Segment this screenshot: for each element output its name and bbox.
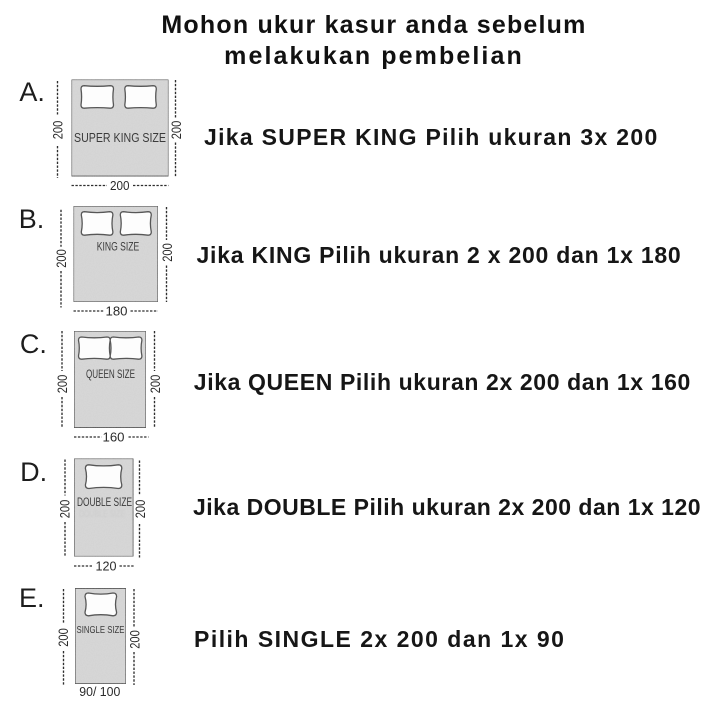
svg-text:200: 200 xyxy=(159,243,175,262)
svg-text:200: 200 xyxy=(53,249,69,268)
svg-text:200: 200 xyxy=(132,500,148,519)
svg-text:SINGLE SIZE: SINGLE SIZE xyxy=(77,624,125,636)
svg-text:160: 160 xyxy=(103,430,125,445)
svg-text:200: 200 xyxy=(55,628,71,647)
svg-text:200: 200 xyxy=(50,121,66,140)
svg-text:DOUBLE SIZE: DOUBLE SIZE xyxy=(79,508,125,520)
svg-text:SUPER KING SIZE: SUPER KING SIZE xyxy=(74,130,166,145)
svg-text:KING SIZE: KING SIZE xyxy=(97,242,140,254)
svg-text:200: 200 xyxy=(127,630,143,649)
svg-text:QUEEN SIZE: QUEEN SIZE xyxy=(86,369,135,381)
svg-text:200: 200 xyxy=(168,121,184,140)
svg-text:200: 200 xyxy=(57,500,73,519)
svg-text:200: 200 xyxy=(110,178,130,193)
svg-text:180: 180 xyxy=(106,304,128,319)
svg-text:120: 120 xyxy=(96,558,117,573)
svg-text:90/ 100: 90/ 100 xyxy=(79,684,120,699)
svg-text:200: 200 xyxy=(147,375,163,394)
svg-text:200: 200 xyxy=(54,375,70,394)
